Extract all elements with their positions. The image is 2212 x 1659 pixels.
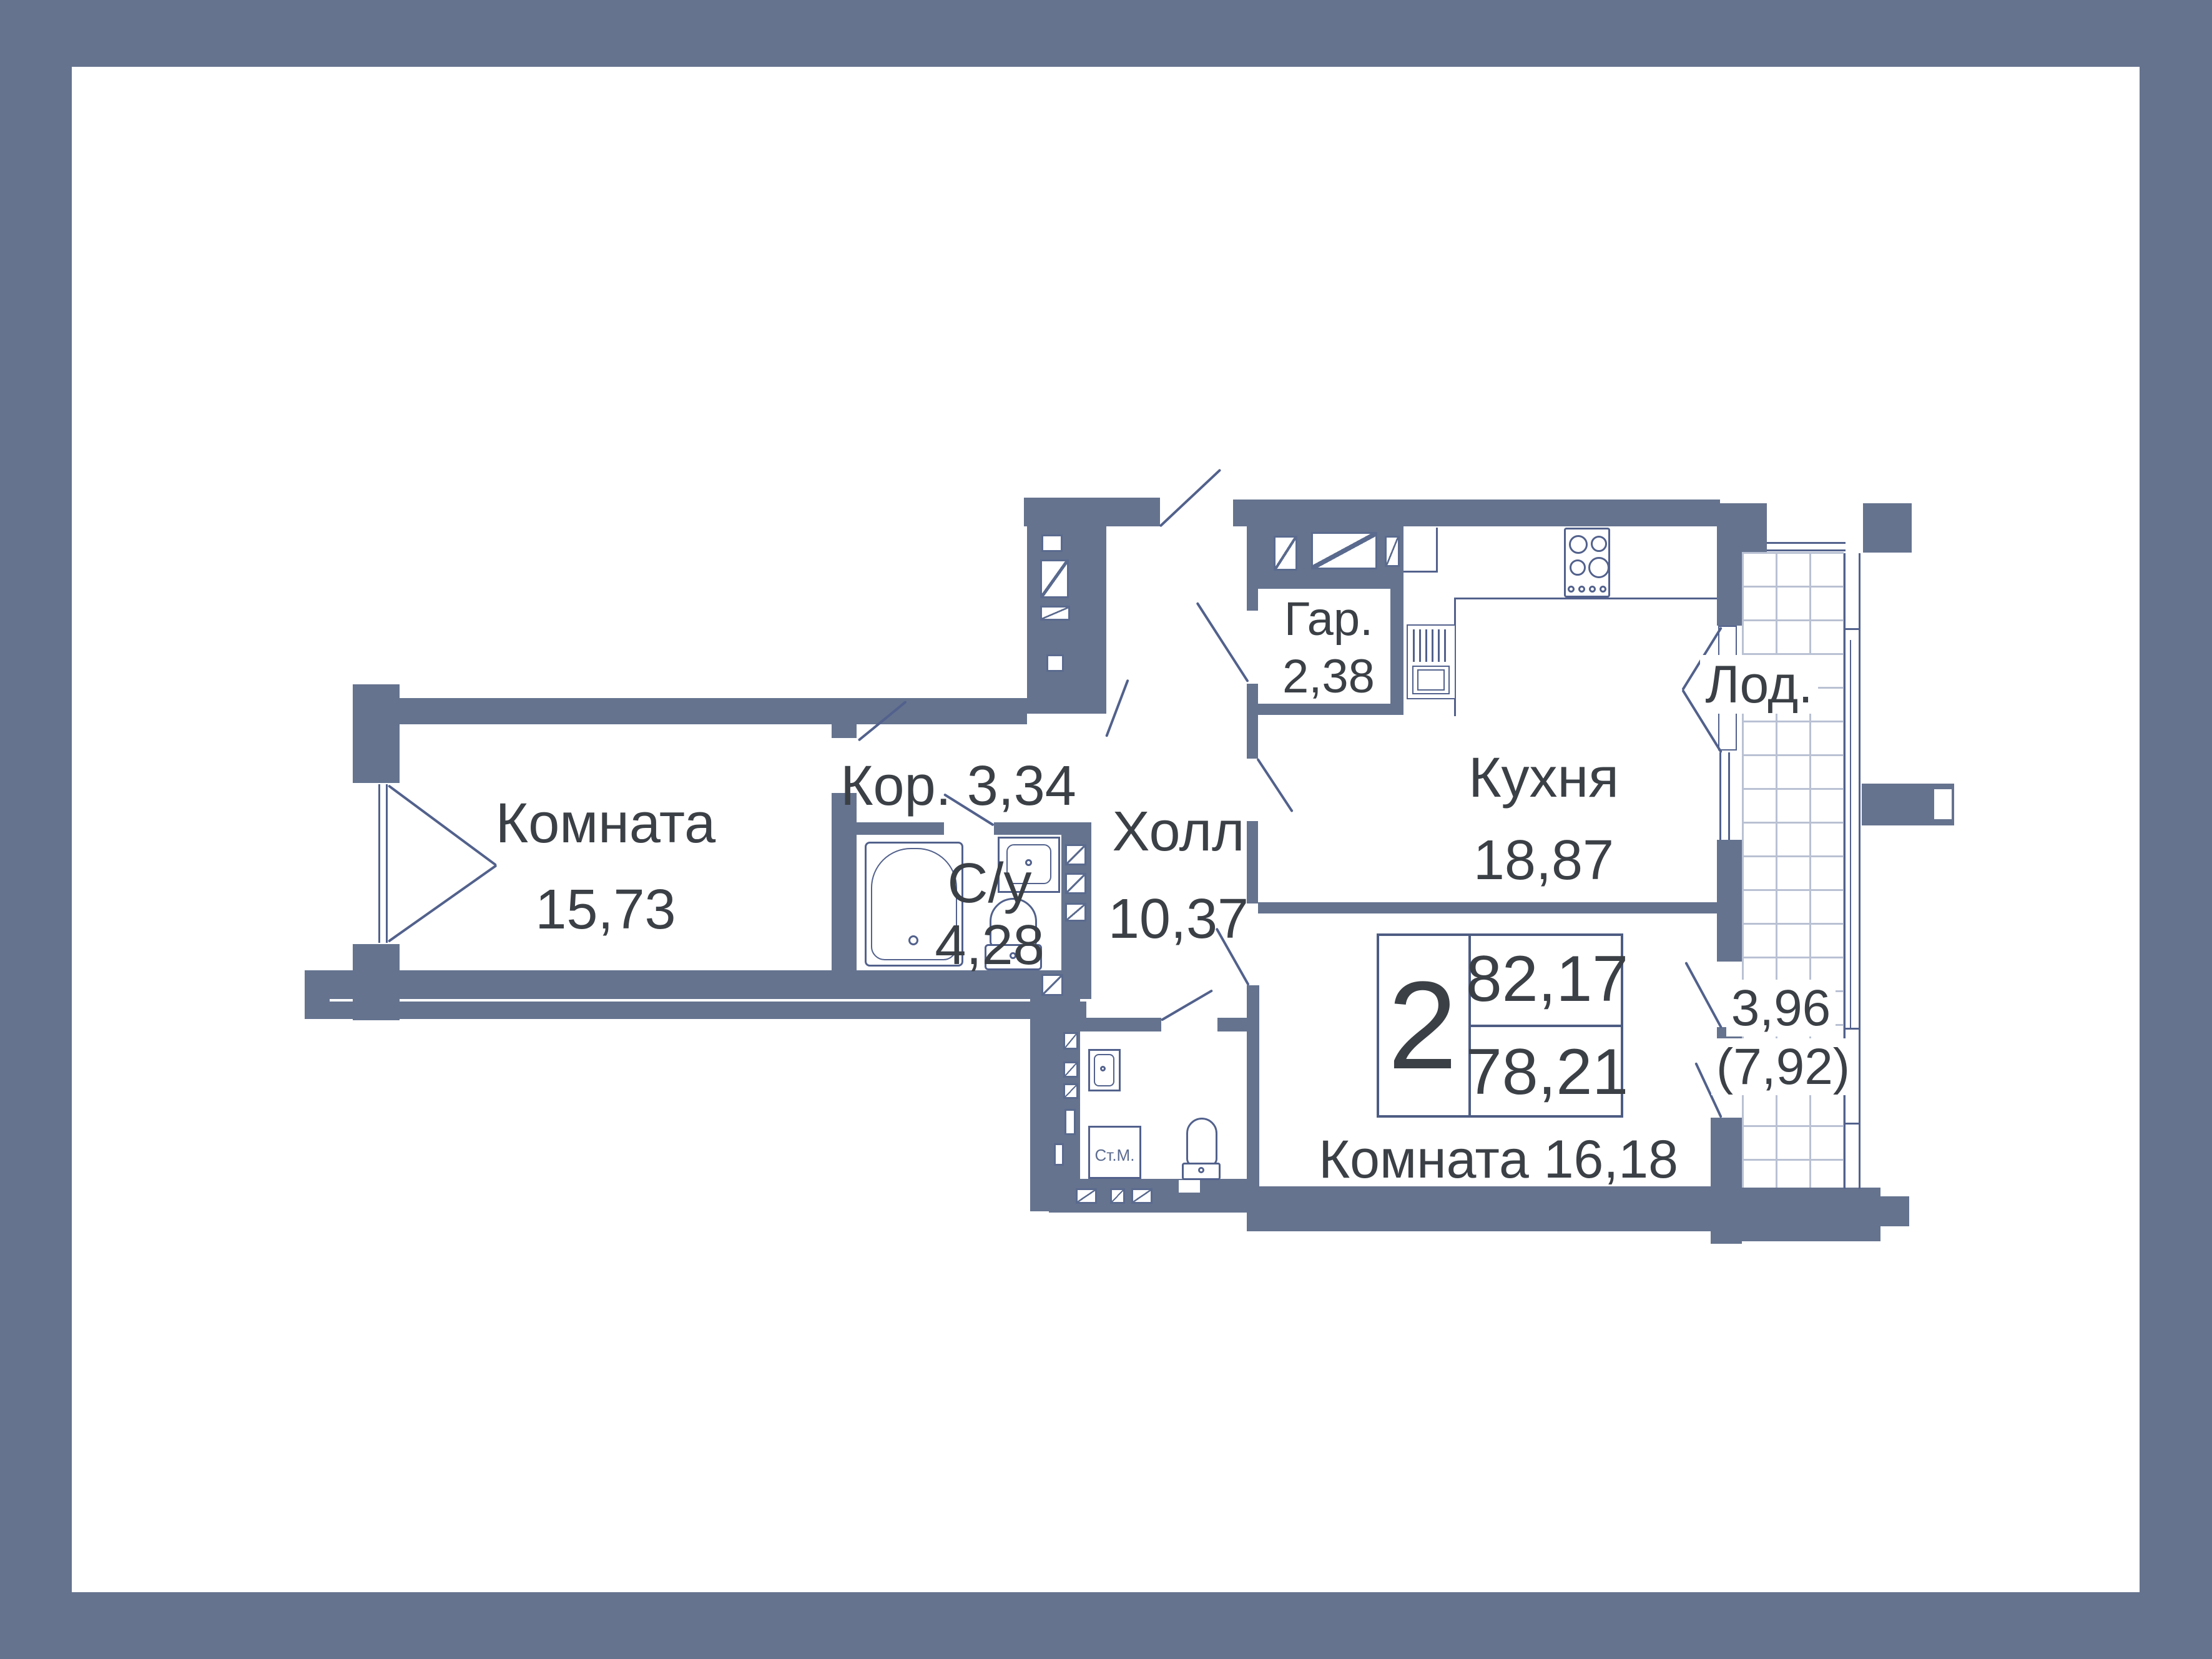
wall-room1-corner-tl [353,684,400,783]
wall-room2-left [1247,1018,1259,1199]
rooms-count-value: 2 [1377,933,1468,1118]
kitchen-niche-line [1436,528,1438,573]
vent-shaft-box [1040,606,1070,621]
floor-plan-page: { "rooms": { "room1": {"label":"Комната"… [0,0,2212,1659]
vent-shaft-box [1385,536,1400,567]
loggia-glazing-sash [1850,640,1851,1028]
hall-label: Холл 10,37 [1061,788,1295,963]
vent-shaft-box [1274,536,1297,571]
stove-burner [1591,536,1607,552]
vent-shaft-box [1046,654,1064,672]
window-glazing-line [386,784,388,943]
room2-label: Комната 16,18 [1299,1121,1698,1199]
total-area-value: 82,17 [1471,933,1623,1025]
loggia-label: Лод. [1692,647,1826,723]
room2-name: Комната [1319,1130,1529,1189]
loggia-glazing-tick [1844,1123,1861,1125]
window-glazing-line [378,784,380,943]
loggia-top-glazing-line [1767,549,1846,551]
kitchen-counter-line [1454,598,1456,627]
kitchen-loggia-window-line [1719,752,1721,840]
vent-shaft-box [1041,534,1063,552]
vent-shaft-box [1110,1188,1125,1204]
loggia-name: Лод. [1700,655,1817,714]
vent-shaft-box [1063,1061,1078,1078]
corridor-name: Кор. [840,755,951,817]
wall-loggia-bottom [1711,1188,1880,1241]
loggia-area-full: (7,92) [1708,1030,1858,1105]
vent-shaft-box [1041,974,1063,996]
wall-room1-right-stub [832,724,857,738]
wardrobe-area: 2,38 [1260,648,1397,706]
room1-area: 15,73 [456,867,755,953]
wall-top-right [1233,500,1720,526]
stove-knob [1578,586,1585,593]
vent-shaft-box [1040,559,1069,598]
wall-loggia-left-mid [1717,840,1742,962]
stove-burner [1570,559,1586,576]
loggia-area-value: 3,96 [1726,980,1836,1036]
vent-shaft-box [1131,1188,1153,1204]
kitchen-counter-line [1454,699,1456,716]
wall-bath2-bottom-notch [1179,1180,1200,1193]
vent-shaft-box [1311,532,1377,569]
wall-right-protrusion-notch [1934,789,1952,819]
hall-name: Холл [1061,788,1295,875]
vent-shaft-box [1063,1032,1078,1050]
loggia-glazing-tick [1844,628,1861,630]
bath1-label: С/у 4,28 [905,853,1074,977]
stove-knob [1600,586,1606,593]
bath1-name: С/у [905,853,1074,915]
wall-wardrobe-left-column [1247,684,1258,759]
toilet-button [1198,1167,1204,1173]
wall-top-corner-kitchen-loggia [1720,503,1767,553]
kitchen-sink-basin-inner [1417,669,1445,691]
kitchen-name: Кухня [1408,737,1679,819]
wardrobe-name: Гар. [1260,591,1397,648]
room1-label: Комната 15,73 [456,780,755,953]
bath1-area: 4,28 [905,915,1074,977]
stove-knob [1589,586,1596,593]
stove-burner [1569,535,1588,554]
living-area-value: 78,21 [1471,1027,1623,1118]
room2-area: 16,18 [1544,1130,1678,1189]
kitchen-label: Кухня 18,87 [1408,737,1679,902]
loggia-top-glazing-line [1767,542,1846,544]
vent-shaft-box [1063,1083,1078,1099]
stove-knob [1568,586,1575,593]
kitchen-counter-line [1456,598,1717,599]
wall-bath2-top-right [1217,1018,1259,1031]
sink-faucet [1100,1066,1106,1071]
corridor-label: Кор. 3,34 [824,746,1093,827]
loggia-glazing-tick [1844,1028,1861,1030]
wall-kitchen-room2 [1258,902,1720,913]
wall-room2-left-stub [1247,985,1259,1019]
kitchen-area: 18,87 [1408,819,1679,902]
wall-wardrobe-left-upper [1247,526,1258,611]
vent-shaft-box [1054,1143,1064,1166]
room1-name: Комната [456,780,755,867]
wall-exterior-ledge [305,1002,1086,1019]
kitchen-niche-line [1403,571,1438,573]
corridor-area: 3,34 [967,755,1076,817]
wall-bottom-right-step [1880,1196,1909,1226]
hall-area: 10,37 [1061,875,1295,963]
loggia-glazing-outer [1859,553,1861,1189]
wall-room1-top [373,698,1027,724]
vent-shaft-box [1064,1109,1076,1135]
kitchen-loggia-window-line [1728,752,1730,840]
dish-rack-icon [1413,629,1450,662]
washing-machine-label: Ст.М. [1088,1144,1141,1168]
wall-top-corner-far-right [1863,503,1912,553]
wardrobe-label: Гар. 2,38 [1260,591,1397,706]
loggia-area-full-value: (7,92) [1711,1038,1855,1095]
toilet-icon [1186,1118,1217,1166]
stove-burner [1588,557,1610,578]
wall-hall-top-left [1024,498,1160,526]
vent-shaft-box [1076,1188,1097,1204]
